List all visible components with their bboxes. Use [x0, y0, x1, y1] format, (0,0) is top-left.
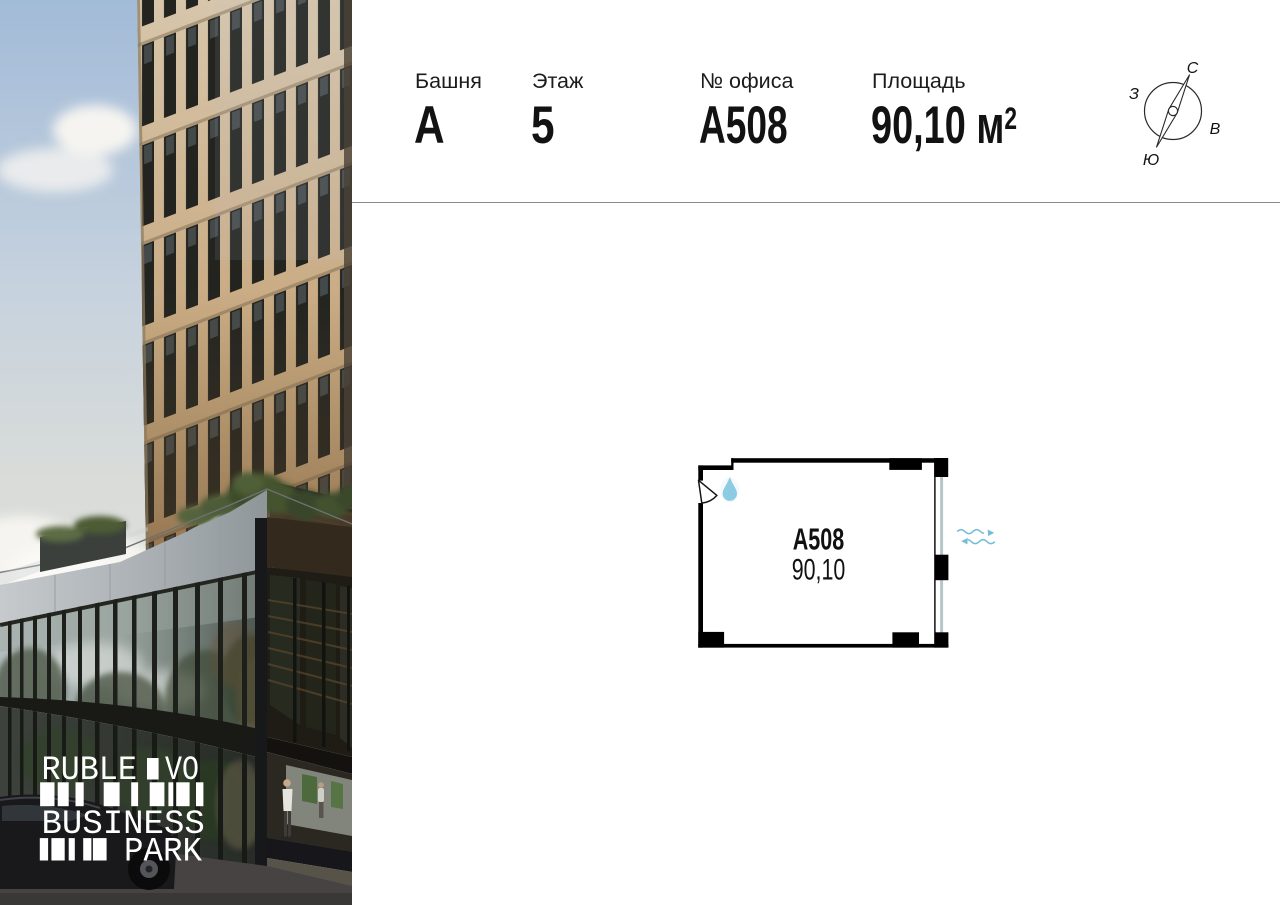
svg-text:RUBLE: RUBLE — [42, 751, 138, 790]
svg-text:В: В — [1210, 121, 1221, 138]
svg-text:А508: А508 — [793, 522, 845, 556]
svg-text:З: З — [1129, 86, 1139, 103]
svg-text:С: С — [1187, 60, 1199, 77]
svg-text:PARK: PARK — [124, 833, 202, 872]
svg-text:90,10: 90,10 — [792, 554, 846, 587]
svg-text:Ю: Ю — [1143, 152, 1159, 169]
